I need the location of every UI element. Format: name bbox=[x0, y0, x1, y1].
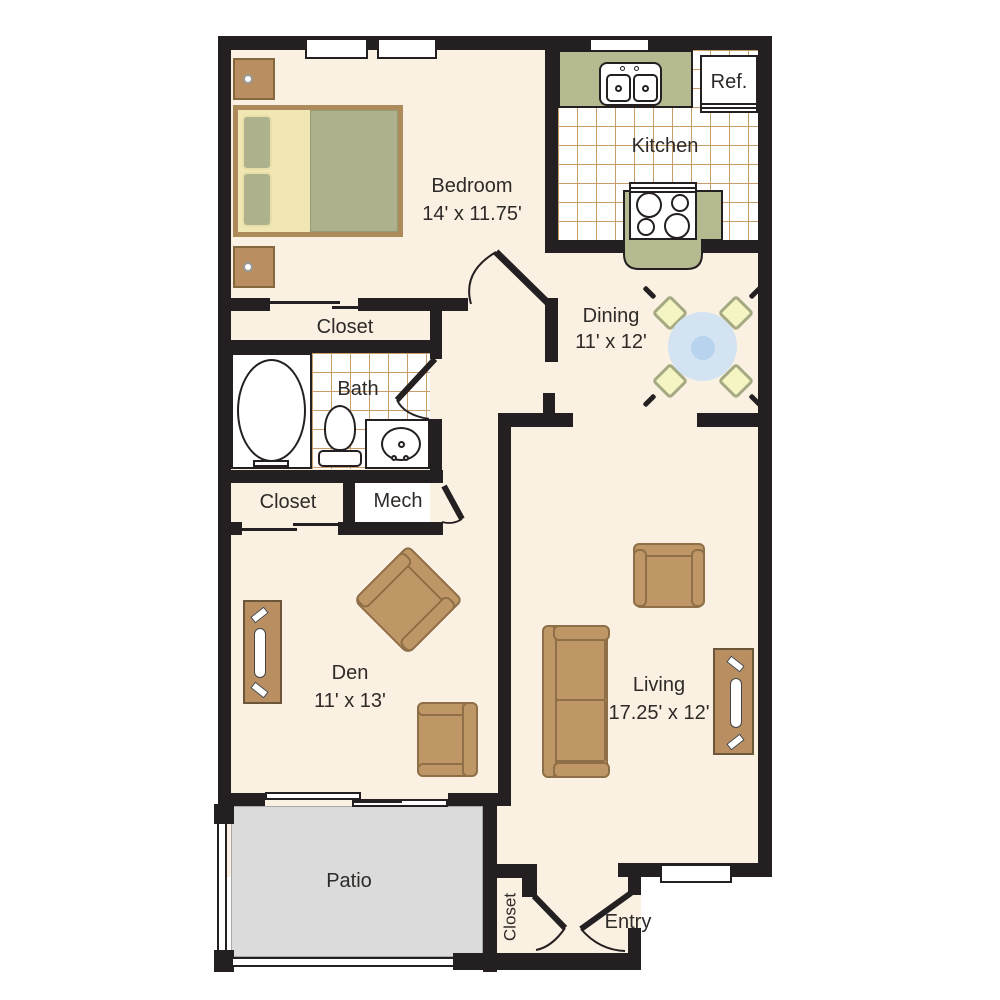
wall-entry-bottom bbox=[483, 953, 641, 970]
bed bbox=[233, 105, 403, 237]
bedroom-label: Bedroom bbox=[431, 175, 512, 197]
bed-pillow-2 bbox=[242, 172, 272, 227]
hall-closet-door-line-1 bbox=[242, 528, 297, 531]
bathtub-ledge bbox=[253, 460, 289, 467]
entry-label: Entry bbox=[605, 911, 652, 933]
wall-bedroom-bottom-a bbox=[218, 298, 270, 311]
den-dims: 11' x 13' bbox=[314, 690, 386, 712]
wall-den-bottom-b bbox=[448, 793, 511, 806]
hall-closet-label: Closet bbox=[260, 491, 317, 513]
wall-living-vertical bbox=[498, 413, 511, 806]
wall-right bbox=[758, 36, 772, 877]
burner-top-left bbox=[636, 192, 662, 218]
stove-top-line-1 bbox=[631, 187, 695, 189]
den-label: Den bbox=[332, 662, 369, 684]
chair-arm-top bbox=[417, 702, 467, 716]
living-media-console bbox=[713, 648, 754, 755]
chair-arm-right bbox=[691, 549, 705, 607]
mech-label: Mech bbox=[374, 490, 423, 512]
patio-sliding-door-panel-1 bbox=[265, 792, 361, 800]
bedroom-window-2 bbox=[377, 38, 437, 59]
refrigerator-line-1 bbox=[702, 103, 756, 105]
living-sofa bbox=[542, 625, 608, 778]
wall-top bbox=[218, 36, 772, 50]
tv-icon bbox=[730, 678, 742, 728]
bed-pillow-1 bbox=[242, 115, 272, 170]
patio-post-bottomleft bbox=[214, 950, 234, 972]
bathtub bbox=[231, 353, 312, 469]
nightstand-bottom bbox=[233, 246, 275, 288]
sink-drain-right bbox=[642, 85, 649, 92]
sofa-arm-bottom bbox=[553, 762, 610, 778]
entry-closet-label: Closet bbox=[502, 893, 519, 941]
dining-label: Dining bbox=[583, 305, 640, 327]
wall-entry-closet-top bbox=[497, 864, 537, 878]
bathtub-basin bbox=[237, 359, 306, 462]
living-label: Living bbox=[633, 674, 685, 696]
sink-faucet-dot-2 bbox=[634, 66, 639, 71]
bath-vanity bbox=[365, 419, 430, 469]
bed-blanket bbox=[310, 110, 398, 232]
patio-post-topleft bbox=[214, 804, 234, 824]
chair-back bbox=[462, 702, 478, 777]
bath-label: Bath bbox=[337, 378, 378, 400]
wall-bath-right-upper bbox=[430, 311, 442, 359]
kitchen-sink bbox=[599, 62, 662, 106]
nightstand-top bbox=[233, 58, 275, 100]
wall-entry-closet-stub bbox=[522, 878, 537, 897]
floor-plan: Ref. bbox=[0, 0, 1000, 1000]
burner-bottom-left bbox=[637, 218, 655, 236]
wall-closet-mech-divider bbox=[343, 483, 355, 524]
patio-railing-bottom bbox=[233, 957, 453, 967]
bedroom-window-1 bbox=[305, 38, 368, 59]
wall-living-horizontal-stub bbox=[498, 413, 573, 427]
nightstand-knob-icon bbox=[243, 74, 253, 84]
tv-icon bbox=[254, 628, 266, 678]
stove bbox=[629, 182, 697, 240]
burner-top-right bbox=[671, 194, 689, 212]
toilet-bowl bbox=[324, 405, 356, 451]
patio-railing-left bbox=[217, 824, 227, 950]
speaker-icon bbox=[726, 734, 744, 751]
bedroom-closet-door-line-2 bbox=[332, 306, 358, 309]
wall-entry-right-stub bbox=[628, 877, 641, 895]
sofa-cushion-2 bbox=[555, 699, 606, 762]
kitchen-label: Kitchen bbox=[632, 135, 699, 157]
wall-closet2-bottom-b bbox=[338, 522, 443, 535]
patio-label: Patio bbox=[326, 870, 372, 892]
wall-bedroom-bottom-b bbox=[358, 298, 468, 311]
dining-table-center bbox=[691, 336, 715, 360]
wall-nub bbox=[543, 393, 555, 415]
wall-dining-right-stub bbox=[697, 413, 758, 427]
bedroom-closet-label: Closet bbox=[317, 316, 374, 338]
vanity-knob-1 bbox=[391, 455, 397, 461]
refrigerator-line-2 bbox=[702, 107, 756, 109]
den-armchair bbox=[417, 702, 478, 777]
living-window bbox=[660, 864, 732, 883]
wall-hall-stub bbox=[545, 298, 558, 362]
vanity-drain bbox=[398, 441, 405, 448]
wall-closet2-bottom-a bbox=[218, 522, 242, 535]
wall-patio-right bbox=[483, 806, 497, 972]
patio-post-bottomright bbox=[453, 953, 497, 970]
sink-faucet-dot-1 bbox=[620, 66, 625, 71]
wall-bath-top bbox=[218, 340, 442, 353]
living-armchair bbox=[633, 543, 705, 608]
chair-arm-bottom bbox=[417, 763, 467, 777]
ref-label: Ref. bbox=[711, 71, 748, 93]
wall-bath-bottom bbox=[218, 470, 443, 483]
bedroom-dims: 14' x 11.75' bbox=[422, 203, 522, 225]
burner-bottom-right bbox=[664, 213, 690, 239]
stove-top-line-2 bbox=[631, 191, 695, 193]
wall-left bbox=[218, 36, 231, 806]
wall-kitchen-left bbox=[545, 50, 558, 242]
speaker-icon bbox=[250, 607, 268, 624]
sink-drain-left bbox=[615, 85, 622, 92]
dining-dims: 11' x 12' bbox=[575, 331, 647, 353]
hall-closet-door-line-2 bbox=[293, 523, 343, 526]
chair-arm-left bbox=[633, 549, 647, 607]
toilet-tank bbox=[318, 450, 362, 467]
den-media-console bbox=[243, 600, 282, 704]
speaker-icon bbox=[726, 656, 744, 673]
sofa-cushion-1 bbox=[555, 639, 606, 701]
speaker-icon bbox=[250, 682, 268, 699]
living-dims: 17.25' x 12' bbox=[608, 702, 709, 724]
vanity-knob-2 bbox=[403, 455, 409, 461]
wall-kitchen-bottom-right bbox=[700, 240, 760, 253]
wall-kitchen-bottom-left bbox=[545, 240, 625, 253]
bedroom-closet-door-line-1 bbox=[268, 301, 340, 304]
nightstand-knob-icon bbox=[243, 262, 253, 272]
patio-sliding-door-stile bbox=[352, 800, 402, 803]
